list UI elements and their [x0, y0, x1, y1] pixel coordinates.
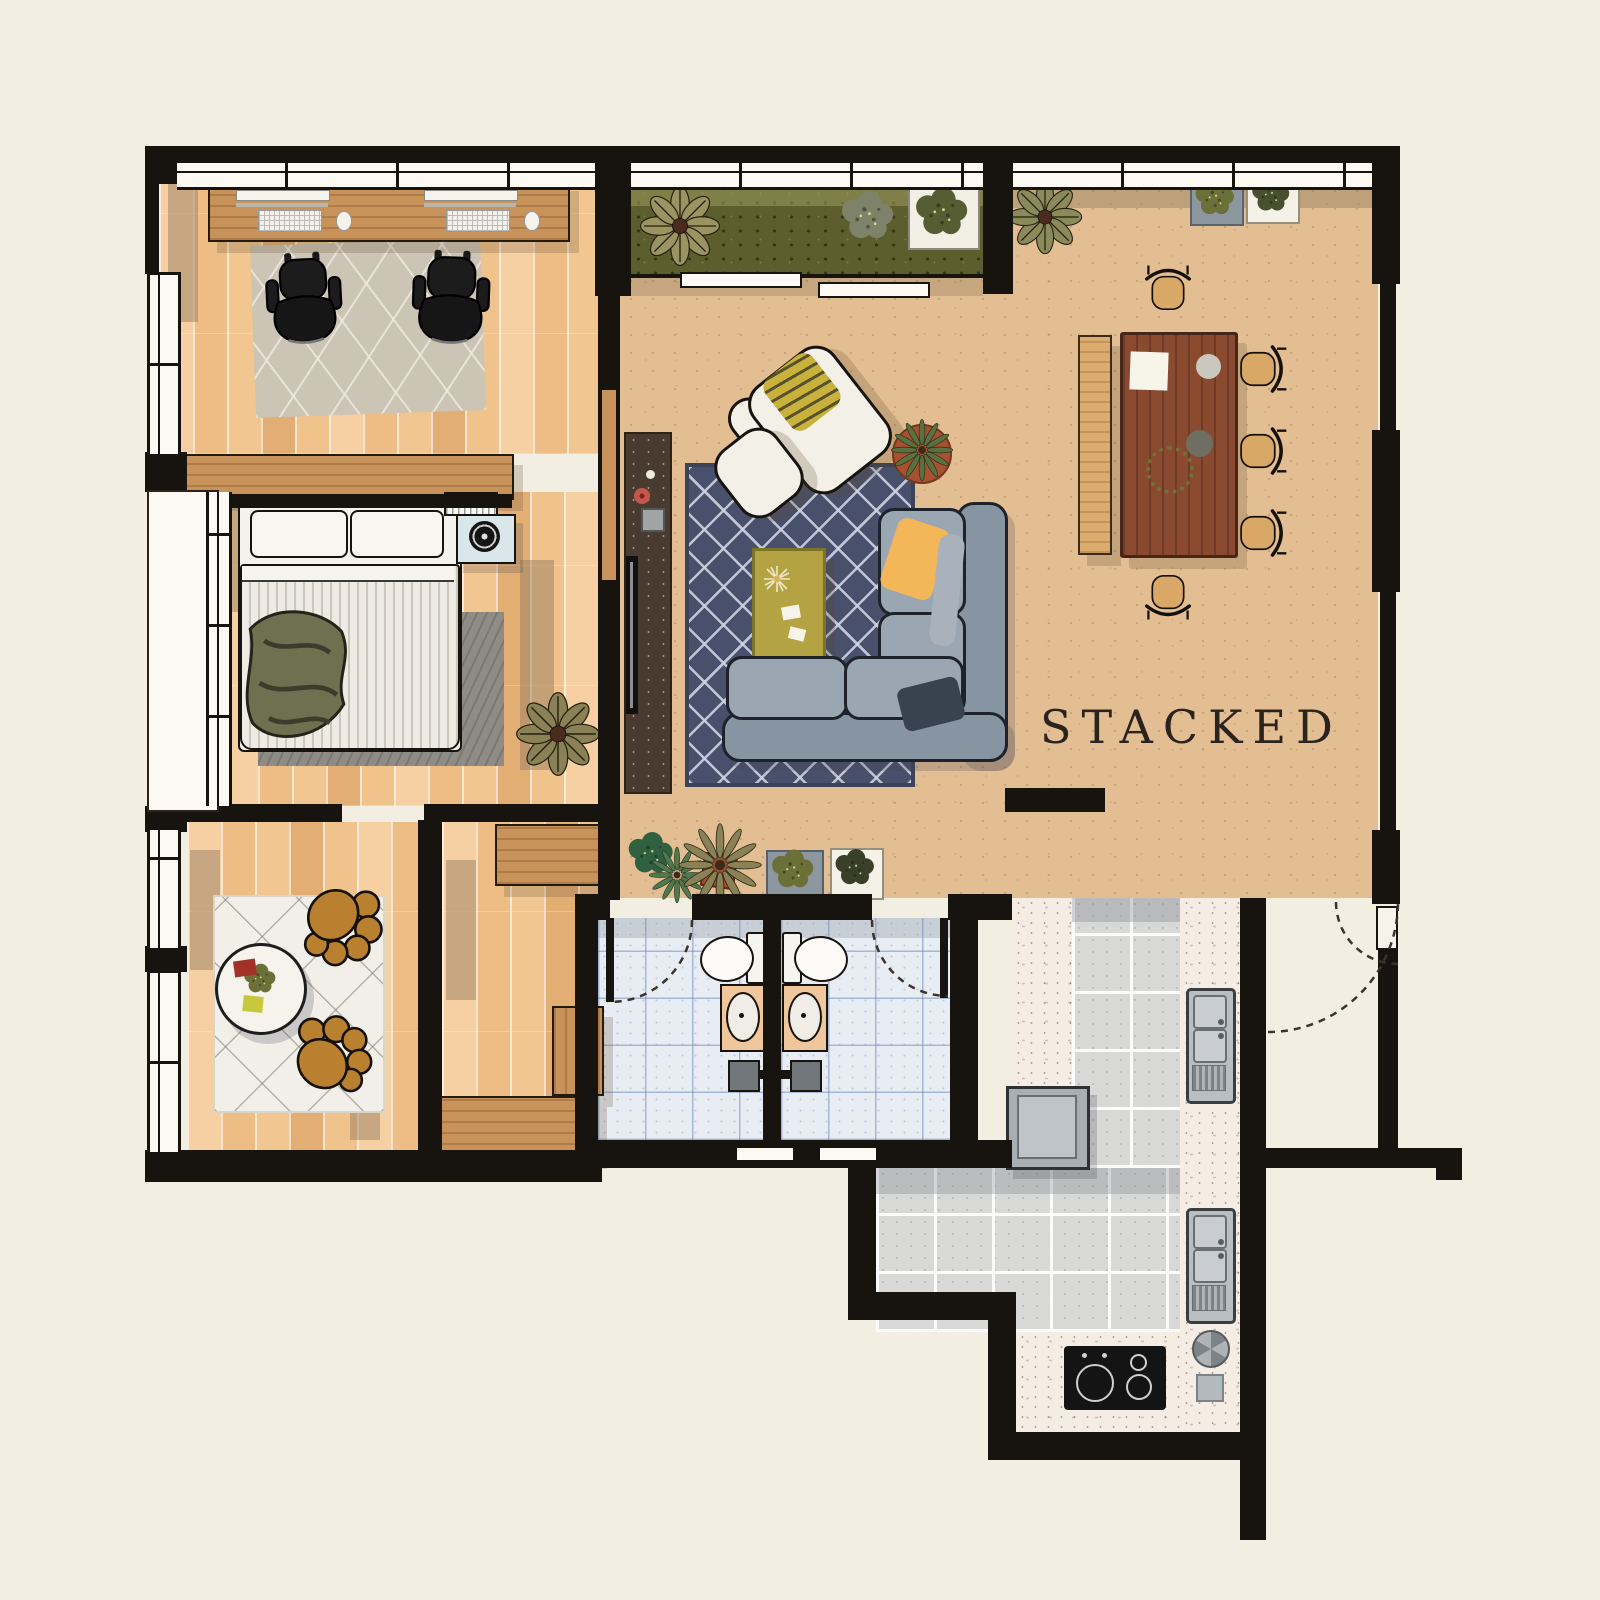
shower-mixer	[728, 1060, 760, 1092]
window	[147, 272, 181, 454]
wall	[948, 894, 1012, 920]
wall	[1372, 146, 1400, 284]
red-coaster	[233, 959, 257, 978]
sofa-seat	[726, 656, 848, 720]
window	[147, 830, 181, 948]
cooktop	[1064, 1346, 1166, 1410]
appliance-vent	[1192, 1065, 1226, 1091]
wall	[575, 894, 598, 1168]
window	[147, 970, 181, 1152]
dining-chair	[1233, 339, 1291, 399]
table-wreath	[1146, 446, 1194, 494]
appliance-handle	[1218, 1239, 1224, 1245]
wall	[848, 1292, 1016, 1320]
hall-cabinet	[495, 824, 607, 886]
console-speaker	[641, 508, 665, 532]
dining-chair	[1140, 260, 1196, 318]
wall	[1380, 284, 1396, 432]
wall	[1378, 948, 1398, 1152]
plate	[1196, 354, 1221, 379]
dining-bench	[1078, 335, 1112, 555]
wall	[1380, 590, 1396, 832]
vinyl-record	[469, 521, 500, 552]
wall	[1240, 898, 1266, 1168]
floor-plant	[826, 842, 884, 896]
burner-small	[1126, 1374, 1152, 1400]
napkin	[1129, 351, 1168, 390]
wall	[145, 1150, 602, 1182]
table-starburst	[762, 564, 792, 594]
office-chair	[257, 246, 350, 352]
cooktop-knob	[1102, 1353, 1107, 1358]
appliance-vent	[1192, 1285, 1226, 1311]
bath-wall-shadow	[598, 918, 763, 938]
appliance-stack	[1186, 988, 1236, 1104]
wall	[418, 820, 442, 1154]
sliding-door-panel	[602, 390, 616, 580]
window	[1013, 160, 1372, 190]
bed-pillow	[350, 510, 444, 558]
appliance-handle	[1218, 1019, 1224, 1025]
bath-wall-shadow	[781, 918, 950, 938]
television	[626, 556, 638, 714]
wall	[1266, 1148, 1462, 1168]
floor-plank	[446, 860, 476, 1000]
mouse	[524, 211, 540, 231]
balcony-plant	[636, 184, 724, 268]
wall	[145, 158, 159, 274]
vent-window	[735, 1146, 795, 1162]
dining-chair	[1233, 503, 1291, 563]
sofa-plant	[890, 418, 954, 482]
wall	[1240, 1168, 1266, 1540]
potted-plant	[514, 690, 602, 778]
wall	[1005, 788, 1105, 812]
kitchen-counter	[1012, 898, 1072, 1090]
keyboard	[446, 210, 510, 232]
plate	[1186, 430, 1213, 457]
wall	[1436, 1148, 1462, 1180]
console-decor-dot	[646, 470, 655, 479]
dining-chair	[1140, 566, 1196, 626]
washing-machine	[1006, 1086, 1090, 1170]
kitchen-shadow	[1072, 898, 1180, 922]
wall	[424, 804, 600, 822]
wall	[950, 918, 978, 1168]
sliding-track	[680, 272, 802, 288]
faucet	[739, 1013, 744, 1018]
door-leaf	[606, 918, 614, 1002]
monitor-stand	[236, 203, 328, 207]
wall	[988, 1432, 1266, 1460]
appliance-stack	[1186, 1208, 1236, 1324]
monitor	[236, 190, 330, 201]
cooktop-knob	[1082, 1353, 1087, 1358]
floor-plant	[762, 842, 824, 900]
wall	[145, 946, 187, 972]
bed-duvet-fold	[242, 566, 454, 582]
entry-door-panel	[1376, 906, 1398, 950]
bed-throw-blanket	[234, 594, 360, 758]
window	[631, 160, 983, 190]
vinyl-on-console	[634, 488, 650, 504]
door-leaf	[940, 918, 948, 998]
monitor	[424, 190, 518, 201]
bed-pillow	[250, 510, 348, 558]
wall	[145, 452, 187, 492]
window	[206, 492, 232, 806]
washer-door	[1017, 1095, 1077, 1159]
faucet	[801, 1013, 806, 1018]
wall	[988, 1320, 1016, 1434]
appliance-handle	[1218, 1253, 1224, 1259]
plan-watermark: STACKED	[1040, 700, 1340, 754]
wall	[1372, 830, 1400, 904]
wall	[763, 918, 781, 1142]
wall	[692, 894, 872, 920]
chartreuse-coaster	[242, 995, 264, 1013]
hall-cabinet	[428, 1096, 598, 1158]
extractor-fan-icon	[1192, 1330, 1230, 1368]
wall	[983, 146, 1013, 294]
sliding-track	[818, 282, 930, 298]
burner-large	[1076, 1364, 1114, 1402]
tv-screen	[630, 562, 633, 708]
monitor-stand	[424, 203, 516, 207]
dining-chair	[1233, 421, 1291, 481]
keyboard	[258, 210, 322, 232]
kitchen-sink-icon	[1196, 1374, 1224, 1402]
balcony-plant	[828, 182, 908, 254]
burner-tiny	[1130, 1354, 1147, 1371]
mouse	[336, 211, 352, 231]
floor-plan: STACKED	[0, 0, 1600, 1600]
wall	[1372, 430, 1400, 592]
shower-mixer	[790, 1060, 822, 1092]
appliance-handle	[1218, 1033, 1224, 1039]
office-chair	[404, 244, 498, 351]
window	[177, 160, 595, 190]
vent-window	[818, 1146, 878, 1162]
